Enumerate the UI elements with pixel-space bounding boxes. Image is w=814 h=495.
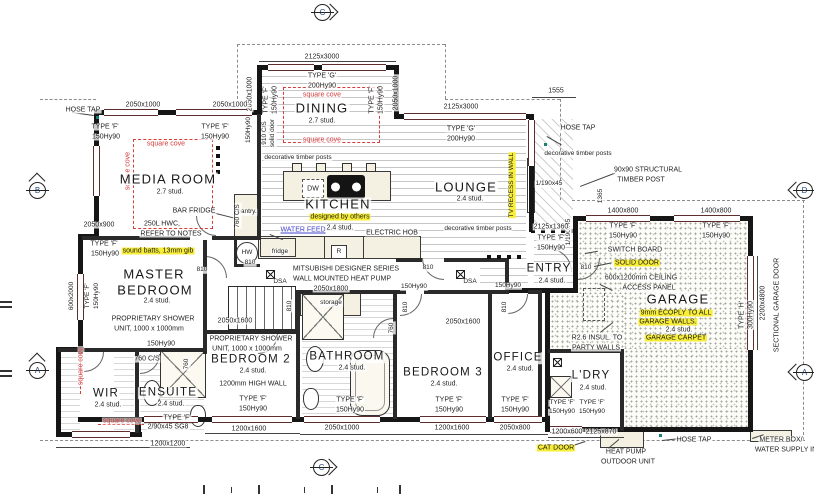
island-post-4 bbox=[366, 163, 376, 172]
door-810-lounge: 810 bbox=[422, 265, 435, 272]
i-bed3-top-b bbox=[424, 290, 490, 294]
door-810-bed2: 810 bbox=[287, 300, 294, 313]
dim-2200x4800: 2200x4800 bbox=[760, 285, 767, 322]
win-bed2 bbox=[212, 416, 292, 423]
dim-2125x1360: 2125x1360 bbox=[533, 224, 570, 231]
ldr-90x90-post bbox=[580, 172, 616, 187]
scale-tick-6 bbox=[377, 487, 378, 493]
dimline-1555 bbox=[532, 97, 576, 98]
room-kitchen: KITCHEN bbox=[304, 198, 371, 211]
hose-tap-nw: HOSE TAP bbox=[65, 107, 102, 114]
fold-mark-1a bbox=[0, 301, 12, 303]
door-810-bed3: 810 bbox=[403, 301, 410, 314]
fold-mark-2a bbox=[0, 370, 12, 372]
door-810-hw: 810 bbox=[244, 260, 257, 267]
type-f-media-1: TYPE 'F' bbox=[90, 124, 119, 131]
hy-150-hall-1: 150Hy90 bbox=[400, 284, 428, 291]
tv-recess: TV RECESS IN WALL bbox=[509, 152, 516, 218]
hy-150-ldry-1: 150Hy90 bbox=[548, 409, 576, 416]
deco-posts-mid: decorative timber posts bbox=[443, 226, 512, 233]
hose-tap-ne: HOSE TAP bbox=[560, 125, 597, 132]
high-wall-note: 1200mm HIGH WALL bbox=[218, 381, 287, 388]
structural-post-2: TIMBER POST bbox=[616, 177, 665, 184]
w-entry-right bbox=[573, 216, 578, 292]
type-f-bed2: TYPE 'F' bbox=[238, 396, 267, 403]
door-arc-wir bbox=[84, 352, 104, 372]
post-dot-lounge-2 bbox=[497, 255, 501, 259]
floor-plan: 2125x3000TYPE 'G'200Hy90square coveDININ… bbox=[0, 0, 814, 495]
room-ldry: L'DRY bbox=[571, 370, 612, 382]
entry-stud: 2.4 stud. bbox=[538, 278, 567, 285]
win-dining-1 bbox=[268, 64, 314, 71]
eave-garage-top bbox=[572, 200, 805, 201]
room-bathroom: BATHROOM bbox=[308, 351, 385, 363]
dim-760-wir: 760 bbox=[184, 358, 191, 371]
mitsubishi-2: WALL MOUNTED HEAT PUMP bbox=[292, 276, 392, 283]
door-910-solid: solid door bbox=[270, 118, 277, 148]
bar-fridge: BAR FRIDGE bbox=[172, 208, 217, 215]
bed2-stud: 2.4 stud. bbox=[239, 368, 268, 375]
ecoply-note-2: GARAGE WALLS. bbox=[638, 319, 697, 326]
elevation-marker-bottom-line bbox=[310, 467, 333, 468]
cove-wir: square cove bbox=[78, 346, 85, 386]
win-wir bbox=[72, 431, 130, 438]
storage: storage bbox=[319, 300, 343, 307]
island-post-1 bbox=[292, 163, 302, 172]
type-f-media-4: TYPE 'F' bbox=[89, 241, 118, 248]
door-810-entry: 810 bbox=[580, 265, 593, 272]
cove-ensuite: square cove bbox=[102, 418, 142, 425]
structural-post-1: 90x90 STRUCTURAL bbox=[613, 167, 683, 174]
room-bed2: BEDROOM 2 bbox=[210, 354, 292, 366]
hy-150-bath: 150Hy90 bbox=[335, 407, 365, 414]
hy-150-garage-1: 150Hy90 bbox=[608, 233, 638, 240]
dsa-1: DSA bbox=[272, 279, 287, 286]
fridge: fridge bbox=[271, 249, 289, 256]
type-f-garage-1: TYPE 'F' bbox=[608, 223, 637, 230]
post-dot-media-1 bbox=[216, 146, 220, 150]
garage-carpet: GARAGE CARPET bbox=[645, 335, 707, 342]
hy-150-office: 150Hy90 bbox=[500, 407, 530, 414]
solid-door-note: SOLID DOOR bbox=[614, 260, 660, 267]
win-office bbox=[494, 416, 542, 423]
post-dot-lounge-4 bbox=[517, 255, 521, 259]
hwc-note-2: REFER TO NOTES bbox=[139, 231, 202, 238]
post-dot-media-3 bbox=[216, 162, 220, 166]
bathroom-stud: 2.4 stud. bbox=[338, 365, 367, 372]
i-hw-left bbox=[234, 240, 237, 266]
cat-door: CAT DOOR bbox=[537, 445, 575, 452]
door-810-master: 810 bbox=[196, 267, 209, 274]
dim-1200x1600-bed2: 1200x1600 bbox=[231, 426, 268, 433]
type-f-ensuite: TYPE 'F' bbox=[162, 415, 191, 422]
cove-dining-top: square cove bbox=[302, 92, 342, 99]
hy-150-media-3: 150Hy90 bbox=[246, 116, 253, 144]
i-bed2-top bbox=[205, 330, 299, 334]
room-garage: GARAGE bbox=[646, 293, 711, 306]
heat-pump-2: OUTDOOR UNIT bbox=[600, 459, 656, 466]
dim-2125x3000-lounge: 2125x3000 bbox=[443, 104, 480, 111]
elevation-marker-top-line bbox=[311, 12, 334, 13]
kitchen-sink bbox=[327, 175, 365, 199]
dim-2050x1600-hall: 2050x1600 bbox=[217, 318, 254, 325]
type-f-dining-left: TYPE 'F' bbox=[263, 85, 270, 114]
hy-150-hall-2: 150Hy90 bbox=[494, 283, 522, 290]
ceiling-access-1: 600x1200mm CEILING bbox=[604, 275, 678, 282]
scale-tick-1 bbox=[203, 485, 205, 494]
hose-tap-s: HOSE TAP bbox=[676, 437, 713, 444]
room-bed3: BEDROOM 3 bbox=[402, 367, 484, 379]
room-lounge: LOUNGE bbox=[434, 181, 498, 194]
win-bed3 bbox=[420, 416, 486, 423]
w-lounge-right2 bbox=[529, 168, 534, 232]
r26-insul-2: PARTY WALLS bbox=[571, 345, 621, 352]
post-dot-media-2 bbox=[216, 154, 220, 158]
i-master-right bbox=[203, 240, 207, 354]
post-dot-lounge-3 bbox=[507, 255, 511, 259]
hy-300-garage: 300Hy90 bbox=[748, 300, 755, 330]
electric-hob: ELECTRIC HOB bbox=[365, 230, 419, 237]
w-wir-left bbox=[56, 347, 61, 437]
door-760-cs-pantry: 760 C/S bbox=[235, 203, 242, 229]
kitchen-stud: 2.4 stud. bbox=[326, 225, 355, 232]
fold-mark-1b bbox=[0, 306, 12, 308]
ldry-switch-symbol bbox=[553, 358, 562, 367]
scale-tick-4 bbox=[304, 487, 305, 493]
meter-box-2: WATER SUPPLY IN bbox=[754, 447, 814, 454]
dim-1400x800-1: 1400x800 bbox=[607, 208, 640, 215]
ecoply-note-1: 9mm ECOPLY TO ALL bbox=[640, 310, 713, 317]
door-810-office: 810 bbox=[502, 301, 509, 314]
floor-porch bbox=[534, 119, 573, 229]
elevation-marker-right-upper-line bbox=[793, 190, 814, 191]
eave-garage-right bbox=[803, 200, 804, 440]
dim-1190x45-v: 1/190x45 bbox=[566, 218, 573, 247]
hwc-note-1: 250L HWC, bbox=[143, 221, 181, 228]
hy-150-entry: 150Hy90 bbox=[536, 245, 566, 252]
type-f-ldry-2: TYPE 'F' bbox=[578, 400, 605, 407]
lounge-stud: 2.4 stud. bbox=[456, 196, 485, 203]
i-hall-north-a bbox=[396, 258, 422, 262]
hy-150-media-2: 150Hy90 bbox=[200, 134, 230, 141]
dim-2050x1000-media-1: 2050x1000 bbox=[125, 102, 162, 109]
r26-insul-1: R2.6 INSUL. TO bbox=[571, 335, 624, 342]
deco-posts-right: decorative timber posts bbox=[543, 151, 612, 158]
win-garage-2 bbox=[674, 215, 740, 222]
heat-pump-1: HEAT PUMP bbox=[605, 449, 647, 456]
dim-2050x800: 2050x800 bbox=[499, 425, 532, 432]
eave-mid bbox=[445, 99, 560, 100]
elevation-marker-left-lower-line bbox=[26, 370, 49, 371]
win-media-left bbox=[93, 146, 100, 196]
door-910-cs: 910 C/S bbox=[262, 120, 269, 146]
dim-2050x1000-media-2: 2050x1000 bbox=[212, 102, 249, 109]
scale-tick-5 bbox=[331, 485, 333, 494]
type-f-garage-2: TYPE 'F' bbox=[701, 223, 730, 230]
hw-cylinder: HW bbox=[241, 250, 254, 257]
type-g-lounge: TYPE 'G' bbox=[446, 126, 476, 133]
bed3-stud: 2.4 stud. bbox=[430, 381, 459, 388]
media-stud: 2.7 stud. bbox=[156, 189, 185, 196]
meter-box-1: METER BOX/ bbox=[758, 437, 803, 444]
ldry-tub bbox=[550, 376, 572, 398]
hy-150-ldry-2: 150Hy90 bbox=[578, 409, 606, 416]
island-post-2 bbox=[316, 163, 326, 172]
shower-note-2a: PROPRIETARY SHOWER bbox=[209, 336, 294, 343]
room-wir: WIR bbox=[92, 388, 120, 400]
hy-150-garage-2: 150Hy90 bbox=[701, 233, 731, 240]
dimline-ldry bbox=[548, 437, 624, 438]
dw: DW bbox=[306, 186, 320, 193]
elevation-marker-left-upper-line bbox=[26, 190, 49, 191]
eave-top-left bbox=[237, 44, 238, 99]
type-g-dining: TYPE 'G' bbox=[307, 73, 337, 80]
door-760-cs-ens: 760 C/S bbox=[133, 356, 160, 363]
w-dining-left bbox=[257, 65, 262, 115]
bath-toilet bbox=[303, 388, 319, 410]
dim-2125x3000-dining: 2125x3000 bbox=[304, 54, 341, 61]
dimline-dining-top bbox=[259, 61, 396, 62]
dim-1200x1600-bed3: 1200x1600 bbox=[434, 425, 471, 432]
type-f-office: TYPE 'F' bbox=[500, 397, 529, 404]
eave-top bbox=[237, 44, 445, 45]
room-master-2: BEDROOM bbox=[116, 284, 194, 297]
hy-150-bed2: 150Hy90 bbox=[238, 406, 268, 413]
tap-dot-ne bbox=[544, 143, 547, 146]
dim-2050x1800: 2050x1800 bbox=[313, 286, 350, 293]
i-bed2-right bbox=[296, 290, 300, 419]
win-garage-1 bbox=[586, 215, 650, 222]
elevation-marker-right-lower-line bbox=[793, 372, 814, 373]
deco-posts-left: decorative timber posts bbox=[263, 155, 332, 162]
hy-200-dining: 200Hy90 bbox=[307, 83, 337, 90]
ldry-stud: 2.4 stud. bbox=[579, 385, 608, 392]
switch-board: SWITCH BOARD bbox=[607, 247, 663, 254]
i-bed3-top-a bbox=[396, 290, 406, 294]
scale-tick-7 bbox=[399, 485, 401, 494]
post-dot-lounge-1 bbox=[487, 255, 491, 259]
dim-600x2000: 600x2000 bbox=[69, 281, 76, 312]
type-h-garage: TYPE 'H' bbox=[739, 300, 746, 330]
dsa-2: DSA bbox=[462, 279, 477, 286]
range-r: R bbox=[336, 249, 343, 256]
door-arc-office bbox=[508, 294, 528, 314]
sg8-note: 2/90x45 SG8 bbox=[147, 424, 190, 431]
type-f-dining-right: TYPE 'F' bbox=[369, 85, 376, 114]
mitsubishi-1: MITSUBISHI DESIGNER SERIES bbox=[292, 266, 400, 273]
type-f-entry: TYPE 'F' bbox=[536, 235, 565, 242]
hy-150-master: 150Hy90 bbox=[94, 282, 101, 310]
dim-2050x1000-bath: 2050x1000 bbox=[324, 425, 361, 432]
dim-1365: 1365 bbox=[598, 188, 605, 204]
dining-stud: 2.7 stud. bbox=[308, 118, 337, 125]
floor-garage-lower bbox=[624, 349, 748, 427]
win-dining-2 bbox=[322, 64, 386, 71]
hy-150-dining-right: 150Hy90 bbox=[378, 85, 385, 115]
sound-batts: sound batts, 13mm gib bbox=[122, 248, 195, 255]
tap-dot-nw bbox=[96, 116, 99, 119]
room-dining: DINING bbox=[295, 102, 350, 115]
cove-dining-bottom: square cove bbox=[302, 137, 342, 144]
hy-150-ensuite: 150Hy90 bbox=[146, 341, 176, 348]
dim-1190x45-h: 1/190x45 bbox=[535, 181, 564, 188]
type-f-bed3: TYPE 'F' bbox=[434, 397, 463, 404]
dim-1200x600: 1200x600 bbox=[551, 429, 584, 436]
hy-150-bed3: 150Hy90 bbox=[434, 407, 464, 414]
win-lounge bbox=[404, 113, 526, 120]
tap-dot-s bbox=[659, 434, 662, 437]
room-ensuite: ENSUITE bbox=[138, 387, 198, 399]
dim-760-bath: 760 bbox=[389, 322, 396, 335]
water-feed: WATER FEED bbox=[279, 227, 326, 234]
dimline-bottom bbox=[300, 434, 548, 435]
designed-by-others: designed by others bbox=[309, 214, 370, 221]
wir-stud: 2.4 stud. bbox=[94, 402, 123, 409]
scale-tick-3 bbox=[258, 485, 260, 494]
garage-stud: 2.4 stud. bbox=[665, 327, 694, 334]
eave-top-right bbox=[445, 44, 446, 99]
master-stud: 2.4 stud. bbox=[143, 298, 172, 305]
hy-150-media-4: 150Hy90 bbox=[90, 251, 120, 258]
eave-nw bbox=[40, 99, 96, 100]
office-stud: 2.4 stud. bbox=[506, 366, 535, 373]
dim-2050x1600-bed3: 2050x1600 bbox=[445, 319, 482, 326]
ensuite-stud: 2.4 stud. bbox=[157, 401, 186, 408]
hy-200-lounge: 200Hy90 bbox=[446, 136, 476, 143]
dimline-garage-door bbox=[757, 256, 758, 350]
dim-2050x900: 2050x900 bbox=[83, 222, 116, 229]
hy-150-dining-left: 150Hy90 bbox=[272, 85, 279, 115]
room-office: OFFICE bbox=[492, 352, 543, 364]
room-media: MEDIA ROOM bbox=[119, 173, 218, 186]
room-master-1: MASTER bbox=[122, 268, 185, 281]
win-media-1 bbox=[104, 109, 158, 116]
dim-2050x1000-dining-right: 2050x1000 bbox=[393, 75, 400, 112]
win-bath bbox=[304, 416, 380, 423]
win-media-2 bbox=[176, 109, 252, 116]
i-ldry-right bbox=[620, 349, 624, 431]
dim-2125x870: 2125x870 bbox=[585, 429, 618, 436]
shower-note-1b: UNIT, 1000 x 1000mm bbox=[113, 326, 185, 333]
scale-tick-2 bbox=[231, 487, 232, 493]
access-panel-box bbox=[583, 288, 605, 321]
type-f-master: TYPE 'F' bbox=[85, 282, 92, 309]
type-f-media-2: TYPE 'F' bbox=[200, 124, 229, 131]
i-bath-right bbox=[393, 290, 397, 419]
cove-media-top: square cove bbox=[146, 141, 186, 148]
fold-mark-2b bbox=[0, 375, 12, 377]
shower-note-1a: PROPRIETARY SHOWER bbox=[111, 316, 196, 323]
island-post-3 bbox=[342, 163, 352, 172]
sectional-garage-door: SECTIONAL GARAGE DOOR bbox=[774, 257, 781, 353]
shower-note-2b: UNIT, 1000 x 1000mm bbox=[211, 346, 283, 353]
dim-1400x800-2: 1400x800 bbox=[700, 208, 733, 215]
dim-1555: 1555 bbox=[547, 88, 565, 95]
dimline-bed2 bbox=[205, 433, 300, 434]
type-f-ldry-1: TYPE 'F' bbox=[548, 400, 575, 407]
win-lounge-right bbox=[528, 120, 535, 166]
hy-150-media-1: 150Hy90 bbox=[91, 134, 121, 141]
dim-1200x1200: 1200x1200 bbox=[150, 441, 187, 448]
ceiling-access-2: ACCESS PANEL bbox=[621, 285, 676, 292]
room-entry: ENTRY bbox=[526, 263, 573, 275]
type-f-bath: TYPE 'F' bbox=[335, 397, 364, 404]
